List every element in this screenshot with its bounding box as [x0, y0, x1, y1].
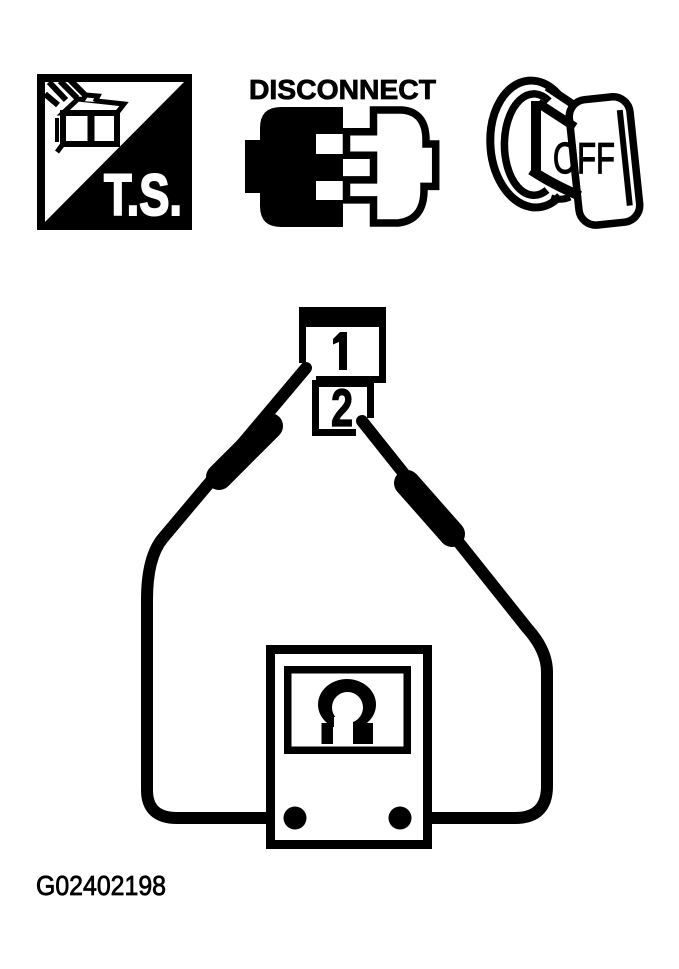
svg-text:T.S.: T.S.	[104, 163, 182, 228]
svg-text:2: 2	[331, 378, 353, 437]
svg-text:DISCONNECT: DISCONNECT	[249, 74, 436, 105]
svg-text:OFF: OFF	[553, 134, 615, 183]
svg-text:G02402198: G02402198	[36, 870, 166, 901]
